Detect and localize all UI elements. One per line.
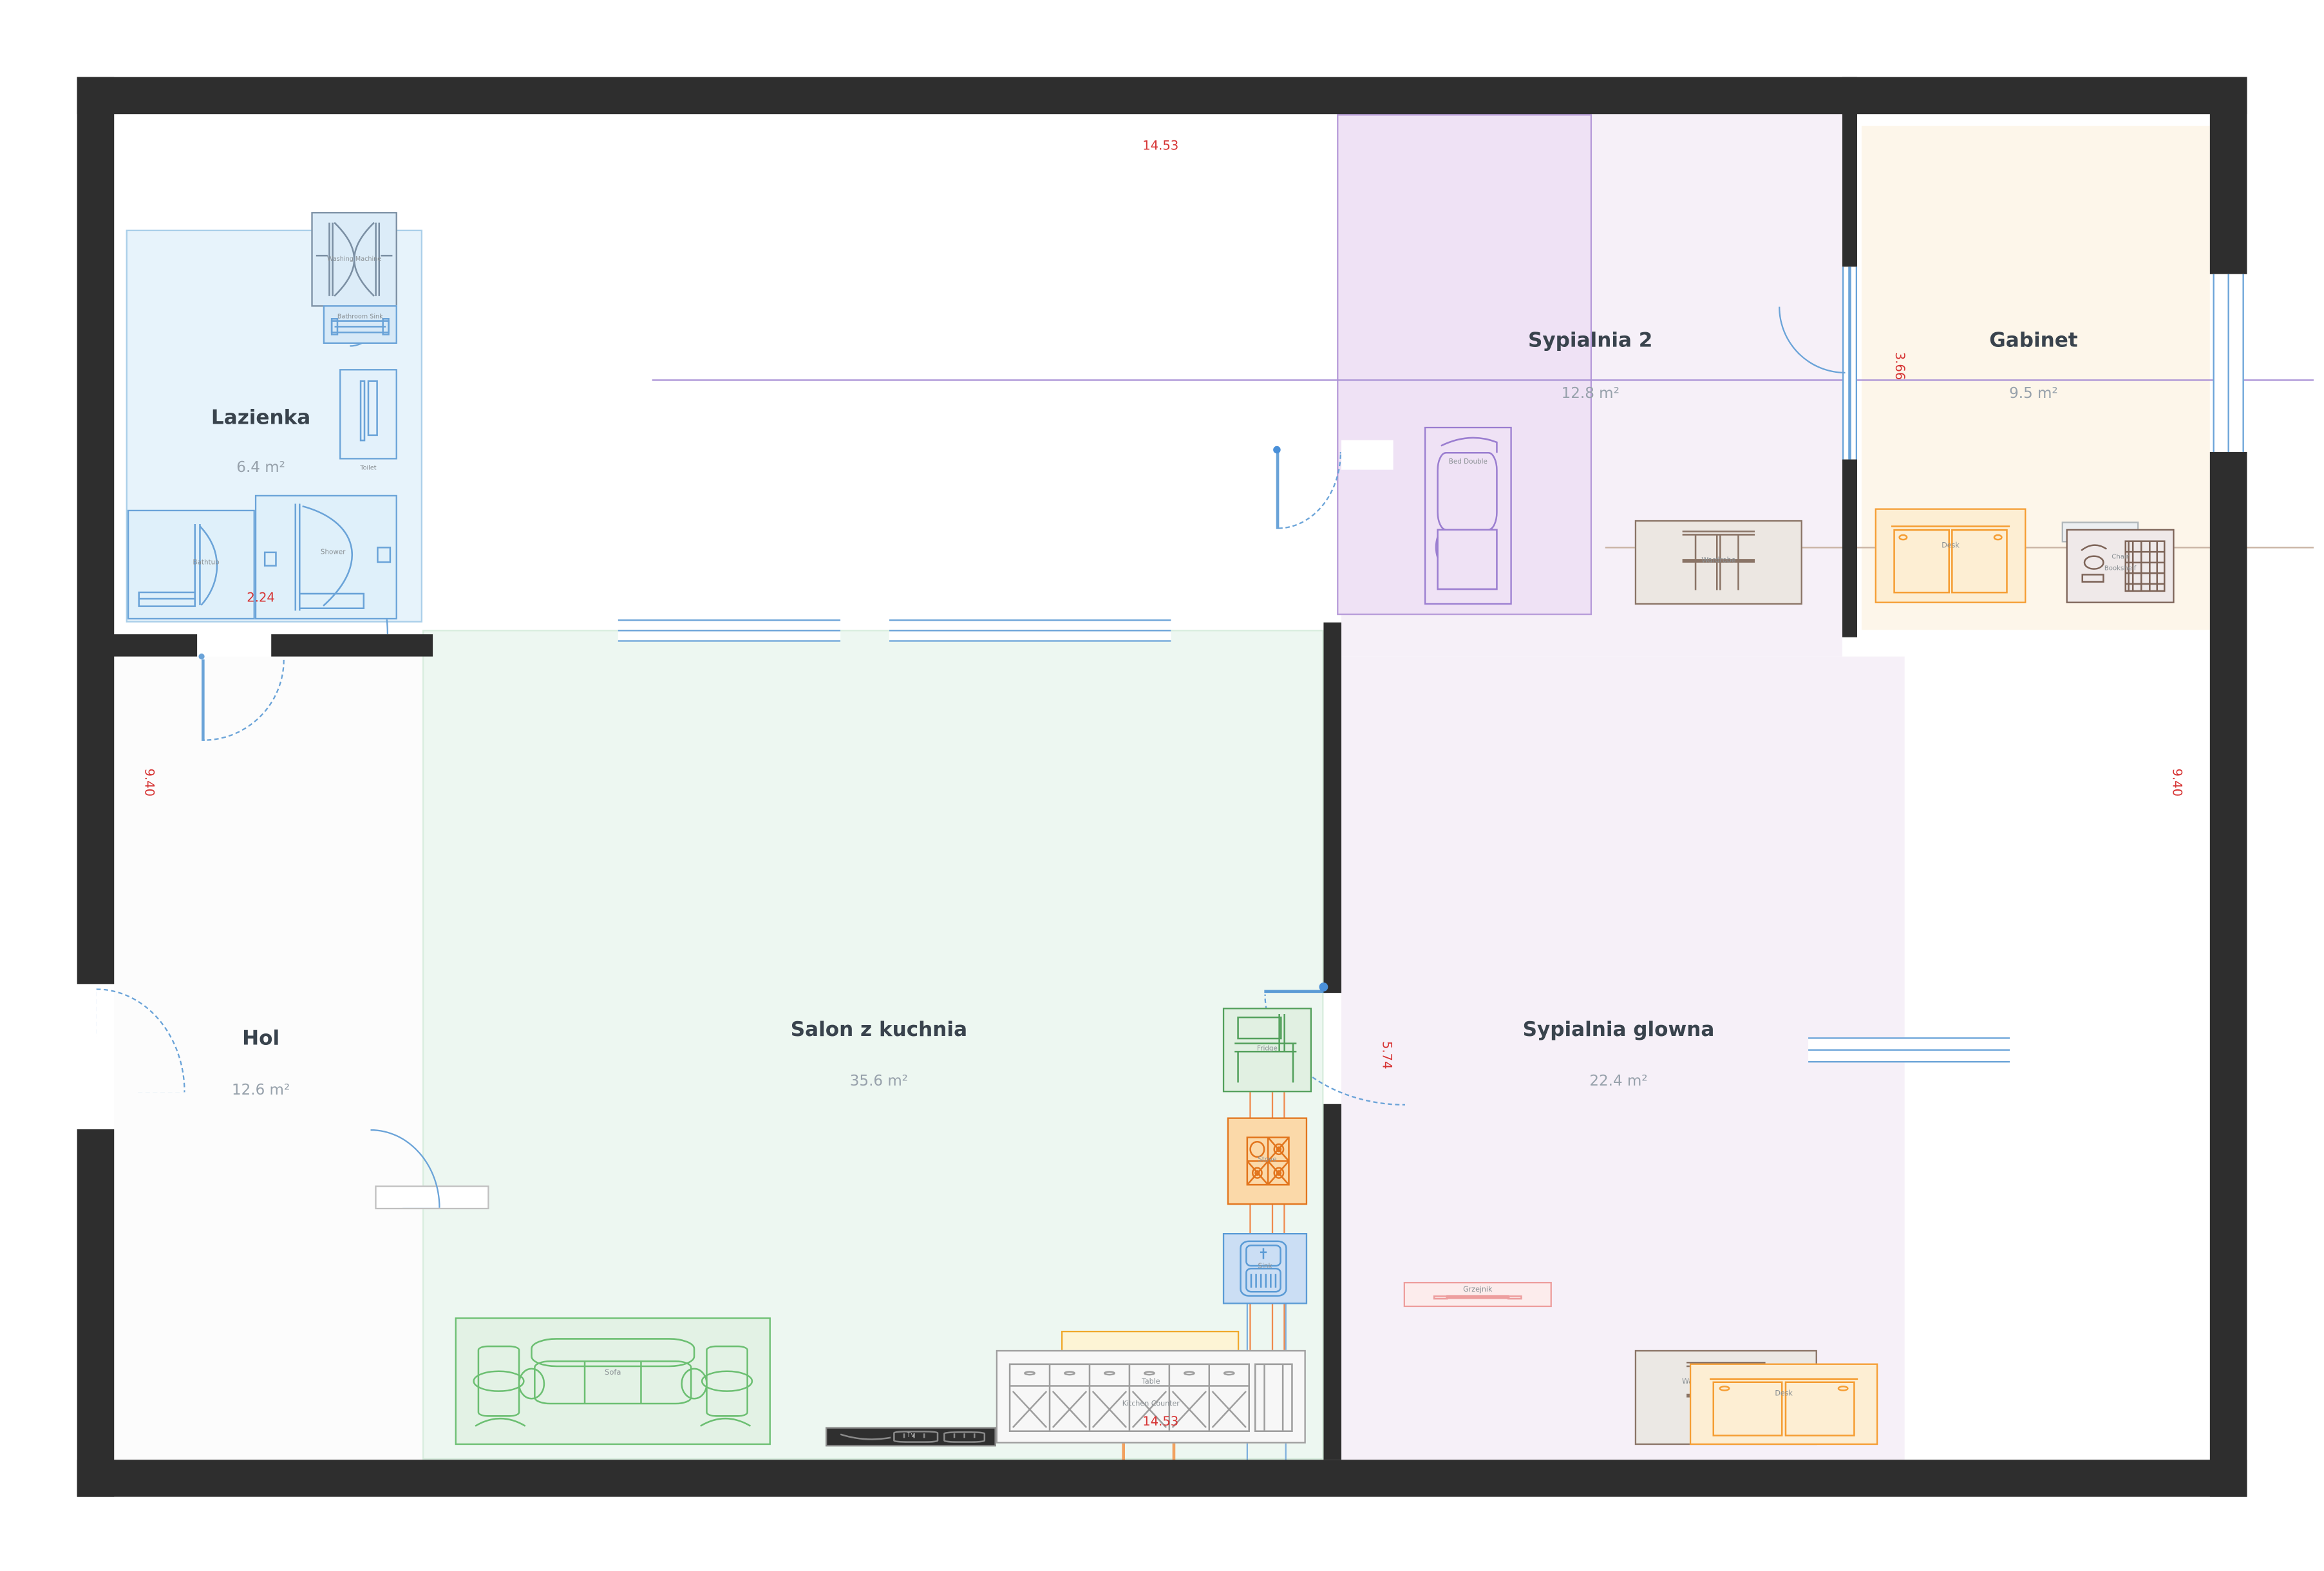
furniture-label: Shower [321,550,346,557]
dimension-label: 14.53 [1142,139,1178,154]
guide-line [1264,990,1327,993]
floor-plan-viewport: Washing MachineBathroom SinkToiletBathtu… [0,0,2324,1571]
furniture-label: Stove [1258,1158,1276,1164]
furniture-toilet: Toilet [339,369,397,459]
room-label-hol: Hol [242,1027,279,1051]
furniture-bed: Bed Double [1424,427,1512,605]
window [889,619,1171,642]
dimension-label: 3.66 [1891,352,1906,381]
furniture-washing-machine: Washing Machine [311,212,397,306]
wall-segment [271,634,433,657]
wall-segment [2210,77,2247,274]
dimension-label: 2.24 [247,591,275,606]
wall-segment [104,634,197,657]
door-hinge-dot [1272,446,1280,453]
furniture-label: Grzejnik [1463,1289,1492,1296]
furniture-label: Chair [2111,556,2129,562]
door-arc [1278,452,1341,529]
furniture-bathtub: Bathtub [128,510,255,619]
dimension-label: 14.53 [1142,1415,1178,1430]
sofa-zone-art [457,1319,770,1444]
furniture-label: Bathroom Sink [337,314,383,321]
furniture-label: Wardrobe [1701,559,1735,566]
room-label-sypialnia-glowna: Sypialnia glowna [1523,1018,1715,1042]
room-area-salon-z-kuchnia: 35.6 m² [850,1074,908,1090]
window [2213,274,2244,452]
toilet-art [341,370,395,458]
furniture-desk: Desk [1875,508,2026,603]
dimension-label: 9.40 [2168,769,2183,797]
room-label-lazienka: Lazienka [211,406,310,430]
room-label-sypialnia-2: Sypialnia 2 [1528,329,1652,353]
window [618,619,840,642]
furniture-label: Bathtub [193,561,219,568]
furniture-label: Desk [1941,545,1959,552]
bed-art [1426,428,1510,603]
window [1808,1037,2010,1062]
furniture-label: Table [1142,1380,1160,1388]
wall-segment [77,77,115,984]
furniture-desk: Desk [1690,1364,1878,1445]
furniture-label: Tv [907,1433,914,1440]
furniture-label: Sofa [605,1370,621,1378]
shower-art [256,496,395,618]
furniture-label: Desk [1775,1393,1792,1400]
furniture-bookshelf: BookshelfChair [2066,529,2175,603]
room-area-sypialnia-2: 12.8 m² [1562,386,1620,402]
door-hinge-dot [1319,983,1328,992]
door-hinge-dot [198,654,204,659]
dimension-label: 9.40 [141,769,156,797]
furniture-sink: Sink [1223,1233,1307,1304]
guide-line [652,379,2314,381]
furniture-label: Washing Machine [327,256,381,263]
wall-segment [1323,1104,1341,1460]
bathtub-art [129,511,253,618]
furniture-bathroom-sink: Bathroom Sink [323,305,397,344]
furniture-label: Bookshelf [2104,567,2136,574]
wall-segment [1842,460,1857,637]
wall-segment [77,1460,2247,1497]
desk-art [1876,510,2025,602]
furniture-grzejnik: Grzejnik [1404,1282,1552,1307]
wall-segment [77,77,2247,115]
furniture-label: Fridge [1257,1047,1278,1053]
wall-segment [1842,77,1857,267]
furniture-label: Kitchen Counter [1122,1402,1180,1409]
furniture-label: Bed Double [1449,460,1488,466]
room-area-gabinet: 9.5 m² [2009,386,2058,402]
furniture-wardrobe: Wardrobe [1635,520,1802,605]
room-label-gabinet: Gabinet [1989,329,2077,353]
furniture-sofa-zone: Sofa [455,1317,771,1445]
wall-segment [77,1129,115,1497]
room-area-hol: 12.6 m² [232,1082,290,1098]
furniture-label: Toilet [360,466,376,472]
dimension-label: 5.74 [1379,1041,1393,1069]
bathroom-sink-art [325,306,395,342]
furniture-label: Sink [1258,1265,1272,1272]
furniture-tv: Tv [826,1427,996,1447]
wall-segment [2210,452,2247,1497]
furniture-fridge: Fridge [1223,1008,1312,1092]
floor-plan: Washing MachineBathroom SinkToiletBathtu… [0,0,2324,1571]
room-area-lazienka: 6.4 m² [236,460,285,476]
room-label-salon-z-kuchnia: Salon z kuchnia [791,1018,967,1042]
wall-segment [1323,623,1341,993]
desk-art [1691,1365,1876,1444]
furniture-shower: Shower [255,495,397,619]
room-area-sypialnia-glowna: 22.4 m² [1589,1074,1647,1090]
door-opening [1341,440,1393,470]
furniture-stove: Stove [1227,1117,1307,1205]
